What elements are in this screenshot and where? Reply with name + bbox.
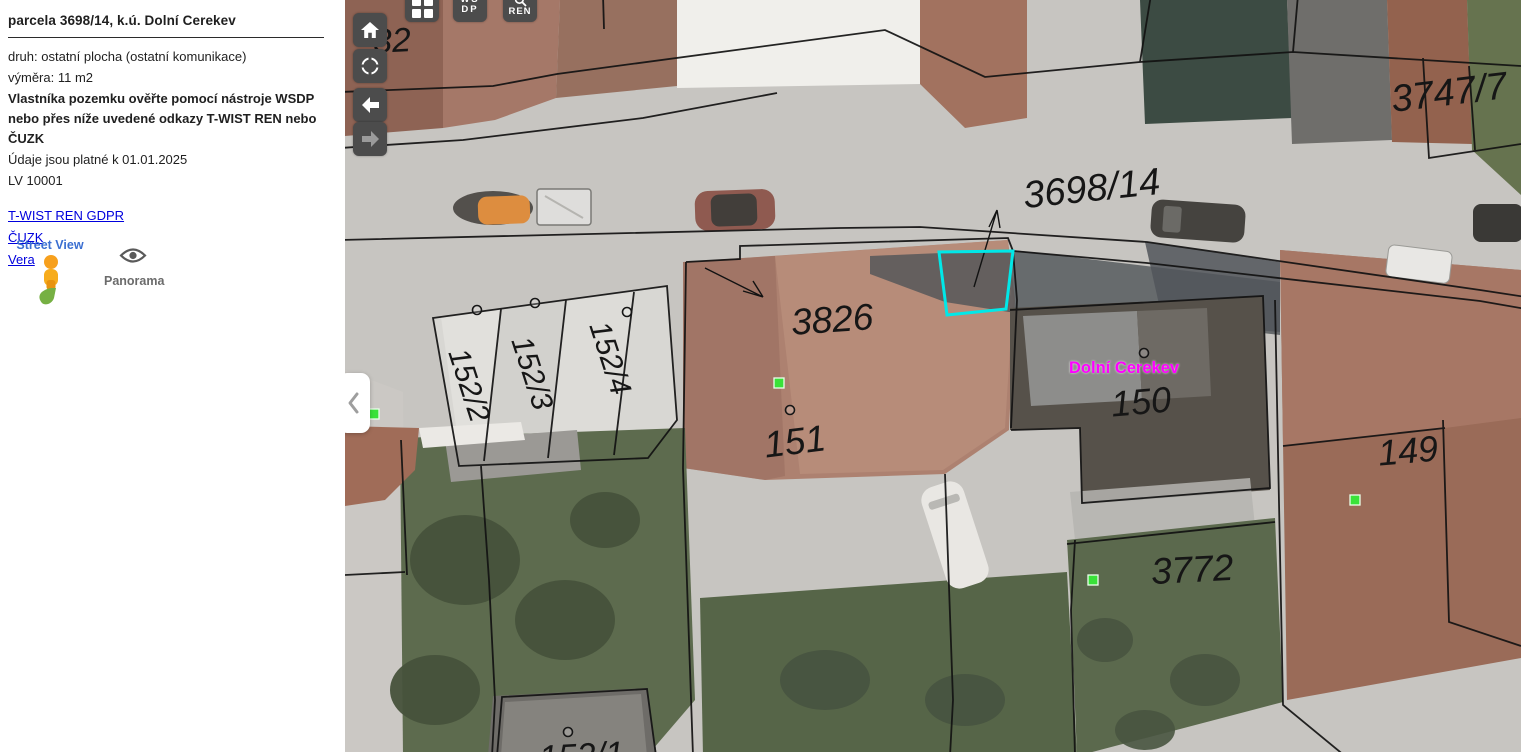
parcel-info: druh: ostatní plocha (ostatní komunikace… [0,47,345,191]
parcel-label-3826: 3826 [790,298,875,341]
panorama-label: Panorama [104,274,162,288]
chevron-left-icon [346,390,362,416]
parcel-label-151: 151 [762,419,828,463]
parcel-label-3772: 3772 [1150,549,1234,590]
parcel-area: výměra: 11 m2 [8,68,339,88]
arrow-right-icon [361,130,380,148]
street-view-label: Street View [14,238,86,252]
parcel-type: druh: ostatní plocha (ostatní komunikace… [8,47,339,67]
home-button[interactable] [353,13,387,47]
ren-search-button[interactable]: REN [503,0,537,22]
street-view-launcher[interactable]: Street View [14,238,86,311]
wsdp-button[interactable]: WS DP [453,0,487,22]
cadastral-map-app: parcela 3698/14, k.ú. Dolní Cerekev druh… [0,0,1521,752]
validity-date: Údaje jsou platné k 01.01.2025 [8,150,339,170]
back-button[interactable] [353,88,387,122]
town-label: Dolní Cerekev [1069,360,1179,377]
parcel-label-149: 149 [1377,430,1440,471]
collapse-sidebar-button[interactable] [345,373,370,433]
title-divider [8,37,324,38]
panorama-eye-icon [119,247,147,264]
wsdp-label-line2: DP [461,5,478,15]
parcel-label-150: 150 [1110,381,1173,422]
lv-number: LV 10001 [8,171,339,191]
home-icon [360,21,380,39]
forward-button[interactable] [353,122,387,156]
tiles-button[interactable] [405,0,439,22]
crosshair-icon [359,55,381,77]
map-viewport[interactable]: 32 3747/7 3698/14 3826 152/2 152/3 152/4… [345,0,1521,752]
owner-note: Vlastníka pozemku ověřte pomocí nástroje… [8,89,339,149]
link-twist-ren-gdpr[interactable]: T-WIST REN GDPR [8,207,124,225]
ren-label: REN [508,7,531,17]
page-title: parcela 3698/14, k.ú. Dolní Cerekev [8,13,337,28]
sidebar: parcela 3698/14, k.ú. Dolní Cerekev druh… [0,0,345,752]
locate-button[interactable] [353,49,387,83]
parcel-label-152-1: 152/1 [538,737,625,752]
arrow-left-icon [361,96,380,114]
grid-icon [412,0,433,18]
street-view-pegman-icon [33,254,67,306]
panorama-launcher[interactable]: Panorama [104,247,162,288]
